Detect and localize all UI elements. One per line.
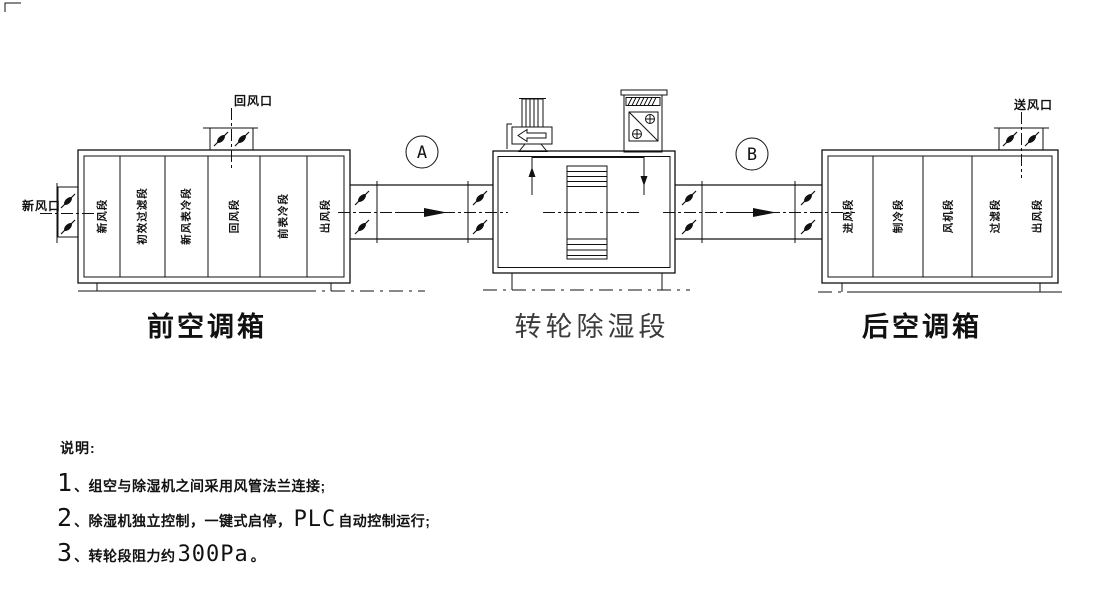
left-arrow-icon: [518, 130, 546, 142]
rear-section-label: 制冷段: [891, 199, 906, 234]
note-item-2: 2 、除湿机独立控制，一键式启停， PLC 自动控制运行;: [57, 503, 430, 532]
return-air-port: [203, 108, 258, 170]
note-highlight: 300Pa: [178, 542, 249, 567]
damper-icon: [61, 220, 75, 234]
note-text: 、转轮段阻力约: [74, 546, 176, 566]
note-number: 3: [57, 538, 72, 567]
damper-icon: [355, 191, 369, 205]
damper-icon: [61, 194, 75, 208]
note-text: 。: [251, 546, 266, 566]
damper-icon: [473, 191, 487, 205]
notes-heading: 说明:: [60, 438, 96, 458]
rear-section-label: 进风段: [841, 199, 856, 234]
damper-icon: [1003, 132, 1017, 146]
damper-icon: [214, 132, 228, 146]
note-number: 2: [57, 503, 72, 532]
damper-icon: [682, 220, 696, 234]
rear-section-label: 风机段: [941, 199, 956, 234]
rear-section-label: 过滤段: [988, 199, 1003, 234]
flow-arrow-icon: [753, 208, 776, 217]
note-highlight: PLC: [294, 507, 337, 532]
down-arrow-icon: [641, 176, 648, 186]
note-item-3: 3 、转轮段阻力约 300Pa 。: [57, 538, 265, 567]
damper-icon: [355, 220, 369, 234]
louver-hatch: [626, 98, 660, 106]
fresh-air-inlet-label: 新风口: [22, 197, 61, 214]
duct-b-label: B: [747, 145, 757, 165]
damper-icon: [473, 220, 487, 234]
damper-icon: [801, 220, 815, 234]
flow-arrow-icon: [424, 208, 447, 217]
front-section-label: 前表冷段: [276, 193, 291, 239]
regeneration-fan-motor: [507, 99, 552, 152]
hvac-dehumidifier-drawing: A: [0, 0, 1104, 610]
wheel-section-box: [483, 151, 690, 290]
front-section-label: 新风段: [95, 199, 110, 234]
up-arrow-icon: [529, 167, 536, 177]
front-section-label: 回风段: [227, 199, 242, 234]
note-number: 1: [57, 468, 72, 497]
front-section-label: 出风段: [318, 199, 333, 234]
note-text: 、除湿机独立控制，一键式启停，: [74, 511, 292, 531]
rear-section-label: 出风段: [1030, 199, 1045, 234]
damper-icon: [235, 132, 249, 146]
duct-b: B: [663, 138, 855, 243]
supply-outlet-label: 送风口: [1014, 96, 1053, 113]
wheel-section-title: 转轮除湿段: [515, 305, 670, 344]
return-air-inlet-label: 回风口: [234, 92, 273, 109]
rear-ahu-title: 后空调箱: [862, 305, 982, 344]
note-item-1: 1 、组空与除湿机之间采用风管法兰连接;: [57, 468, 330, 497]
fan-symbol: [629, 112, 658, 141]
frame-corner-mark: [5, 3, 21, 12]
front-section-label: 新风表冷段: [179, 187, 194, 245]
front-section-label: 初效过滤段: [135, 187, 150, 245]
front-ahu-title: 前空调箱: [147, 305, 267, 344]
damper-icon: [682, 191, 696, 205]
front-ahu-box: [78, 150, 425, 291]
note-text: 、组空与除湿机之间采用风管法兰连接;: [74, 476, 326, 496]
supply-air-port: [994, 112, 1049, 178]
note-text: 自动控制运行;: [338, 511, 430, 531]
duct-a-label: A: [417, 143, 427, 163]
damper-icon: [1025, 132, 1039, 146]
regeneration-exhaust-unit: [621, 90, 667, 152]
damper-icon: [801, 191, 815, 205]
duct-a: A: [338, 136, 508, 243]
